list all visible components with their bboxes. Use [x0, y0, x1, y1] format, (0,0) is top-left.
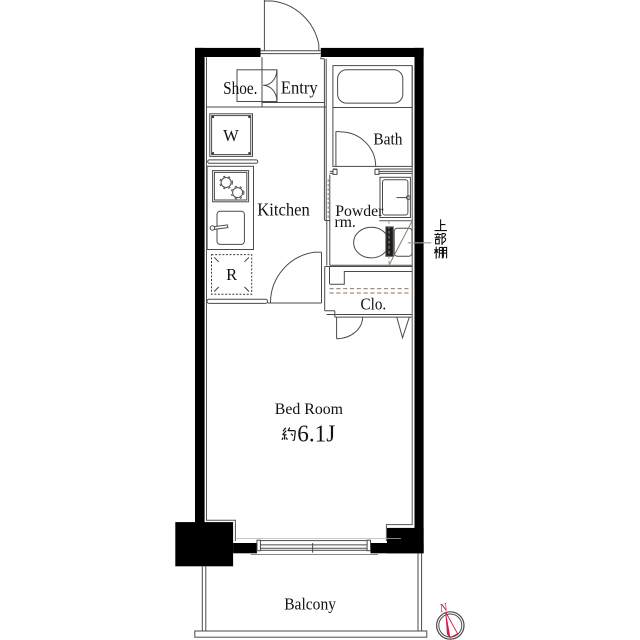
svg-text:Shoe.: Shoe.	[223, 78, 257, 98]
svg-text:Bath: Bath	[373, 129, 403, 148]
svg-text:W: W	[223, 126, 239, 145]
svg-text:Entry: Entry	[281, 78, 318, 98]
svg-text:R: R	[226, 265, 237, 284]
svg-text:rm.: rm.	[335, 214, 356, 231]
svg-text:Bed Room: Bed Room	[275, 401, 344, 418]
svg-text:Balcony: Balcony	[284, 595, 336, 614]
svg-text:Kitchen: Kitchen	[257, 199, 310, 219]
svg-text:Clo.: Clo.	[361, 295, 387, 314]
svg-text:6.1J: 6.1J	[297, 420, 335, 447]
